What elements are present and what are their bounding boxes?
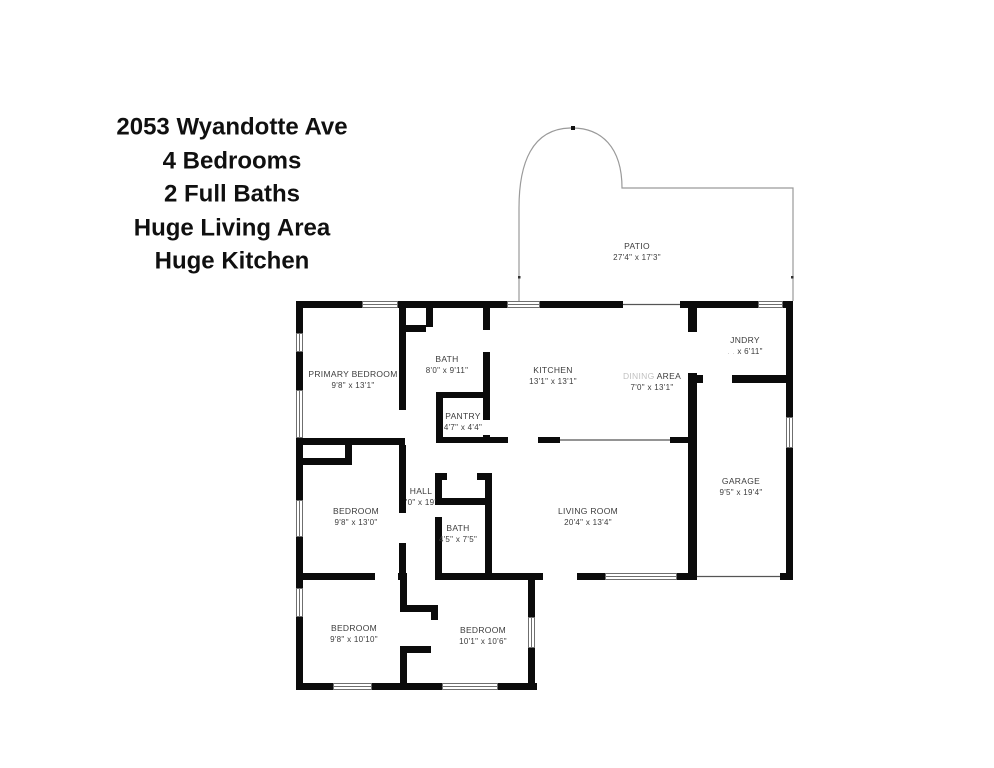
wall-segment — [538, 437, 560, 443]
window — [508, 302, 540, 308]
wall-segment — [483, 352, 490, 420]
wall-segment — [296, 438, 303, 500]
window — [297, 501, 303, 537]
wall-segment — [399, 543, 406, 573]
listing-title-block: 2053 Wyandotte Ave 4 Bedrooms 2 Full Bat… — [62, 110, 402, 278]
room-label-bedroom-bottom-left: BEDROOM 9'8" x 10'10" — [330, 623, 378, 645]
room-label-bath-main: BATH 8'0" x 9'11" — [426, 354, 468, 376]
wall-segment — [296, 352, 303, 390]
wall-segment — [296, 617, 303, 690]
wall-segment — [431, 605, 438, 620]
patio-edge-dot — [518, 276, 521, 279]
window — [606, 574, 677, 580]
wall-segment — [296, 537, 303, 588]
listing-living-area: Huge Living Area — [62, 211, 402, 245]
wall-segment — [398, 301, 507, 308]
wall-segment — [296, 301, 303, 333]
room-label-patio: PATIO 27'4" x 17'3" — [613, 241, 661, 263]
window — [297, 334, 303, 352]
wall-segment — [732, 375, 793, 383]
room-label-laundry: JNDRY . . x 6'11" — [727, 335, 763, 357]
room-label-hall: HALL '0" x 19' — [406, 486, 436, 508]
wall-segment — [483, 302, 490, 330]
listing-baths: 2 Full Baths — [62, 177, 402, 211]
wall-segment — [670, 437, 697, 443]
window — [363, 302, 398, 308]
wall-segment — [399, 325, 426, 332]
wall-segment — [296, 458, 352, 465]
window — [443, 684, 498, 690]
wall-segment — [372, 683, 442, 690]
window — [529, 618, 535, 648]
room-label-dining-area: DINING AREA 7'0" x 13'1" — [623, 371, 681, 393]
wall-segment — [435, 498, 492, 505]
window — [787, 418, 793, 448]
wall-segment — [528, 648, 535, 690]
room-label-pantry: PANTRY 4'7" x 4'4" — [444, 411, 482, 433]
wall-segment — [296, 301, 362, 308]
wall-segment — [436, 392, 443, 437]
wall-segment — [400, 653, 407, 683]
wall-segment — [296, 683, 333, 690]
wall-segment — [436, 437, 508, 443]
room-label-primary-bedroom: PRIMARY BEDROOM 9'8" x 13'1" — [308, 369, 397, 391]
window — [759, 302, 783, 308]
wall-segment — [540, 301, 623, 308]
wall-segment — [399, 302, 406, 410]
listing-kitchen: Huge Kitchen — [62, 244, 402, 278]
floor-plan-page: 2053 Wyandotte Ave 4 Bedrooms 2 Full Bat… — [0, 0, 994, 768]
wall-segment — [400, 580, 407, 605]
wall-segment — [528, 577, 535, 617]
room-label-bedroom-mid: BEDROOM 9'8" x 13'0" — [333, 506, 379, 528]
wall-segment — [688, 373, 697, 577]
wall-segment — [786, 302, 793, 417]
window — [334, 684, 372, 690]
wall-segment — [485, 473, 492, 573]
wall-segment — [436, 392, 490, 398]
wall-segment — [786, 448, 793, 580]
wall-segment — [303, 573, 375, 580]
room-label-bath-hall: BATH 4'5" x 7'5" — [439, 523, 477, 545]
room-label-bedroom-bottom-right: BEDROOM 10'1" x 10'6" — [459, 625, 507, 647]
patio-corner-dot — [571, 126, 575, 130]
room-label-kitchen: KITCHEN 13'1" x 13'1" — [529, 365, 577, 387]
wall-segment — [577, 573, 605, 580]
window — [297, 391, 303, 438]
wall-segment — [398, 573, 407, 580]
listing-address: 2053 Wyandotte Ave — [62, 110, 402, 144]
wall-segment — [400, 646, 431, 653]
window — [297, 589, 303, 617]
patio-edge-dot — [791, 276, 794, 279]
room-label-garage: GARAGE 9'5" x 19'4" — [719, 476, 762, 498]
wall-segment — [426, 307, 433, 327]
room-label-living-room: LIVING ROOM 20'4" x 13'4" — [558, 506, 618, 528]
listing-bedrooms: 4 Bedrooms — [62, 144, 402, 178]
wall-segment — [688, 302, 697, 332]
wall-segment — [435, 573, 543, 580]
patio-outline — [519, 128, 793, 302]
